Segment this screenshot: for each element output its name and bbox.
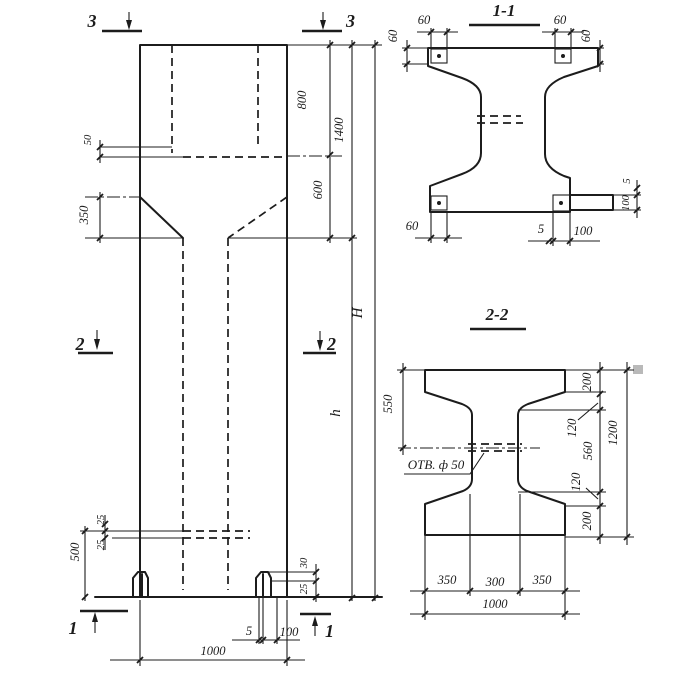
dim-300-mid: 300 (485, 575, 506, 589)
dim-5-right: 5 (622, 178, 633, 183)
section-mark-3-right: 3 (345, 11, 355, 31)
dim-350-left: 350 (437, 573, 458, 587)
dim-30-foot-label: 30 (299, 557, 310, 569)
dim-h-label: h (328, 409, 344, 417)
dim-1200-label: 1200 (606, 420, 620, 446)
dim-60-tl-h: 60 (386, 29, 400, 42)
dim-1400-label: 1400 (332, 117, 346, 143)
engineering-drawing-page: 3 3 2 2 1 1 50 350 800 1400 600 H h 25 2… (0, 0, 700, 700)
section-1-1-extension-lines (402, 28, 641, 246)
dim-100-bottom: 100 (574, 224, 594, 238)
section-2-2-outline (398, 370, 565, 535)
dim-5-base-label: 5 (246, 624, 252, 638)
embedded-plates-1-1 (431, 49, 571, 211)
dim-50-label: 50 (83, 134, 94, 145)
section-2-2-dimension-labels: 550 200 120 560 120 200 1200 350 300 350… (381, 372, 620, 611)
dim-200-bottom: 200 (580, 511, 594, 531)
dim-1000-label: 1000 (483, 597, 509, 611)
dim-60-tr-h: 60 (579, 29, 593, 42)
dim-800-label: 800 (295, 90, 309, 110)
dim-500-label: 500 (68, 542, 82, 562)
dim-200-top: 200 (580, 372, 594, 392)
dim-25-foot-label: 25 (299, 584, 310, 595)
dim-60-tl-w: 60 (418, 13, 431, 27)
elevation-dimension-labels: 50 350 800 1400 600 H h 25 25 500 30 25 … (68, 90, 366, 658)
dim-60-tr-w: 60 (554, 13, 567, 27)
dim-560-label: 560 (581, 441, 595, 461)
dim-100-base-label: 100 (280, 625, 300, 639)
section-1-1-view: 1-1 60 60 6 (386, 1, 641, 246)
dim-350-right: 350 (532, 573, 553, 587)
section-mark-1-left: 1 (69, 618, 78, 638)
dim-550-label: 550 (381, 394, 395, 414)
dim-25-upper-label: 25 (96, 515, 107, 526)
dim-120-bottom: 120 (569, 472, 583, 492)
dim-350-label: 350 (77, 205, 91, 226)
section-2-2-title: 2-2 (485, 305, 509, 324)
dim-25-lower-label: 25 (96, 540, 107, 551)
dim-60-bl: 60 (406, 219, 419, 233)
section-mark-2-left: 2 (75, 334, 85, 354)
dim-120-top: 120 (565, 418, 579, 438)
dim-600-label: 600 (311, 180, 325, 200)
hidden-lines (85, 45, 342, 590)
section-marks: 3 3 2 2 1 1 (69, 11, 356, 641)
section-1-1-dimension-labels: 60 60 60 60 60 5 100 5 100 (386, 13, 633, 238)
dim-1000-base-label: 1000 (201, 644, 227, 658)
drawing-canvas: 3 3 2 2 1 1 50 350 800 1400 600 H h 25 2… (0, 0, 700, 700)
section-2-2-view: 2-2 ОТВ. ф 50 550 200 120 560 120 200 (381, 305, 643, 620)
section-mark-2-right: 2 (326, 334, 336, 354)
scan-artifact (633, 365, 643, 374)
dim-5-bottom: 5 (538, 222, 544, 236)
section-2-2-extension-lines (397, 362, 634, 620)
hole-diameter-label: ОТВ. ф 50 (408, 457, 465, 472)
dim-H-label: H (350, 306, 366, 319)
elevation-view: 3 3 2 2 1 1 50 350 800 1400 600 H h 25 2… (68, 11, 382, 666)
section-mark-1-right: 1 (325, 621, 334, 641)
dim-100-right: 100 (621, 194, 632, 211)
section-mark-3-left: 3 (87, 11, 97, 31)
section-1-1-title: 1-1 (493, 1, 516, 20)
section-1-1-outline (428, 48, 613, 212)
